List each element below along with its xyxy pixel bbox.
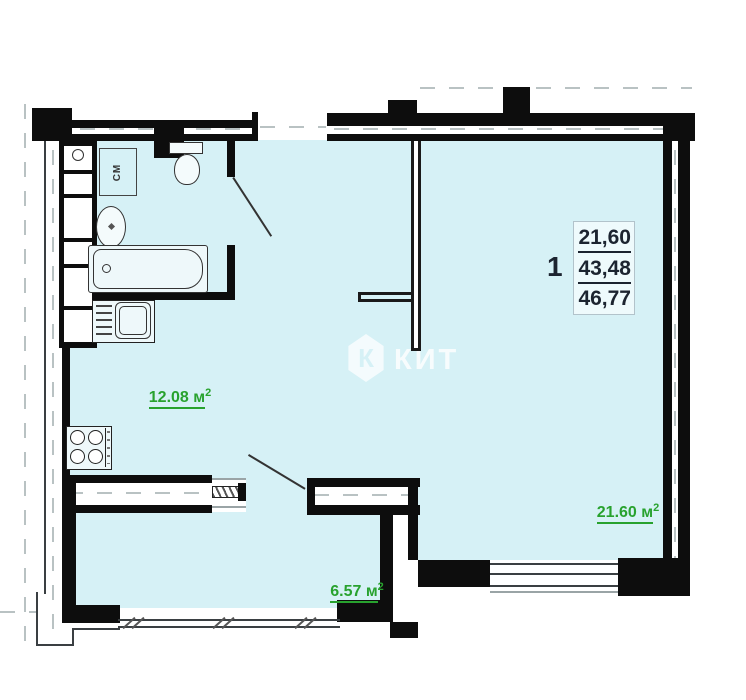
- duct-shaft-cell: [64, 174, 92, 194]
- partition-stub-top: [358, 292, 411, 295]
- vent-circle-icon: [72, 149, 84, 161]
- washing-machine-label: СМ: [112, 163, 123, 180]
- balcony-window-sill-top: [212, 478, 246, 480]
- balcony-door-right-jamb: [307, 478, 315, 515]
- area-sup: 2: [653, 502, 659, 514]
- kitchen-sink-unit: [92, 300, 155, 343]
- wall-top-left-outer: [32, 120, 258, 128]
- wall-left-cavity-dash: [52, 150, 54, 638]
- wall-living-bottom-right-block: [618, 558, 687, 596]
- outer-step-line-h2: [74, 628, 120, 630]
- stats-value-total: 46,77: [578, 285, 631, 312]
- area-label-balcony-text: 6.57 м: [330, 583, 377, 603]
- area-label-living-text: 21.60 м: [597, 504, 653, 524]
- toilet-tank-icon: [169, 142, 203, 154]
- stove-burner: [70, 430, 85, 445]
- adjacent-wall-dashed-bottom: [0, 611, 36, 613]
- partition-stub-cap: [358, 292, 361, 302]
- balcony-window-sill-bottom: [212, 506, 246, 508]
- wall-protrusion-2: [503, 87, 530, 113]
- wall-right-inner: [663, 141, 672, 560]
- area-unit: м: [193, 389, 205, 406]
- stats-value-living: 21,60: [578, 224, 631, 253]
- area-value: 21.60: [597, 504, 637, 521]
- toilet-bowl-icon: [174, 154, 200, 185]
- stove-panel-divider: [105, 428, 106, 467]
- partition-stub-bottom: [358, 299, 411, 302]
- watermark-text: КИТ: [394, 344, 459, 377]
- wall-top-right-corner: [663, 113, 695, 141]
- wall-top-right-outer: [327, 113, 690, 126]
- stats-row-total-area: 46,77: [577, 285, 631, 312]
- wall-balcony-band-right-outer: [307, 478, 420, 487]
- adjacent-wall-dashed-left: [24, 104, 26, 646]
- area-value: 12.08: [149, 389, 189, 406]
- watermark-logo-letter: К: [358, 343, 374, 374]
- wall-top-right-cavity-dash: [334, 128, 674, 130]
- stove-burner: [88, 430, 103, 445]
- duct-shaft-cell: [64, 310, 92, 342]
- entry-opening-left-jamb: [252, 112, 258, 141]
- balcony-window-frame: [212, 486, 239, 498]
- stove-icon: [66, 426, 112, 470]
- wall-balcony-band-left-dash: [68, 492, 206, 494]
- wall-balcony-band-left-inner: [62, 505, 212, 513]
- wall-living-lower-left: [408, 478, 418, 560]
- stats-row-living-area: 21,60: [577, 224, 631, 253]
- partition-end-cap: [411, 348, 421, 351]
- area-sup: 2: [205, 387, 211, 399]
- wall-bathroom-right-upper: [227, 141, 235, 177]
- area-sup: 2: [378, 581, 384, 593]
- area-unit: м: [366, 583, 378, 600]
- living-window-outer-line: [490, 591, 618, 593]
- stove-burner: [88, 449, 103, 464]
- wall-protrusion-1: [388, 100, 417, 113]
- living-window-line-1: [490, 563, 618, 565]
- duct-shaft-cell-vent: [64, 146, 92, 170]
- area-label-kitchen-text: 12.08 м: [149, 389, 205, 409]
- unit-number: 1: [547, 251, 563, 283]
- wall-balcony-bottom-right-block: [337, 600, 393, 622]
- area-unit: м: [641, 504, 653, 521]
- area-value: 6.57: [330, 583, 361, 600]
- duct-shaft-cell: [64, 198, 92, 238]
- living-window-line-2: [490, 573, 618, 575]
- wall-bathroom-bottom: [97, 292, 235, 300]
- outer-step-line-v1: [36, 592, 38, 646]
- outer-step-line-h1: [36, 644, 74, 646]
- wall-balcony-band-right-dash: [314, 494, 414, 496]
- area-label-kitchen: 12.08 м2: [130, 387, 230, 407]
- floor-plan: К КИТ: [0, 0, 746, 700]
- wall-balcony-bottom-left-block: [62, 605, 120, 623]
- stove-panel-marks: [107, 431, 110, 464]
- wall-left-outer-line: [44, 141, 46, 594]
- wall-balcony-band-left-outer: [62, 475, 212, 483]
- wall-right-outer: [678, 141, 690, 596]
- stove-burner: [70, 449, 85, 464]
- partition-line-right: [418, 141, 421, 350]
- area-label-balcony: 6.57 м2: [318, 581, 396, 601]
- wall-bottom-step-notch: [390, 622, 418, 638]
- unit-stats-box: 21,60 43,48 46,77: [573, 221, 635, 315]
- wall-balcony-band-right-inner: [307, 505, 420, 515]
- wall-balcony-left: [62, 483, 76, 612]
- area-label-living: 21.60 м2: [585, 502, 671, 522]
- partition-line-left: [411, 141, 414, 350]
- wall-right-cavity-dash: [674, 150, 676, 580]
- washing-machine-box: СМ: [99, 148, 137, 196]
- kitchen-sink-basin-inner: [119, 306, 147, 335]
- bathtub-drain-circle: [102, 264, 111, 273]
- living-window-line-3: [490, 585, 618, 587]
- balcony-window-jamb-cap: [238, 483, 246, 501]
- outer-step-line-v2: [72, 628, 74, 646]
- kitchen-drainer-lines: [96, 305, 112, 337]
- adjacent-wall-dashed-top: [420, 87, 692, 89]
- stats-row-area-no-balcony: 43,48: [577, 255, 631, 284]
- stats-value-mid: 43,48: [578, 255, 631, 284]
- wall-living-bottom-left-block: [418, 560, 490, 587]
- wall-top-right-inner: [327, 134, 680, 141]
- entry-opening-dash: [260, 126, 326, 128]
